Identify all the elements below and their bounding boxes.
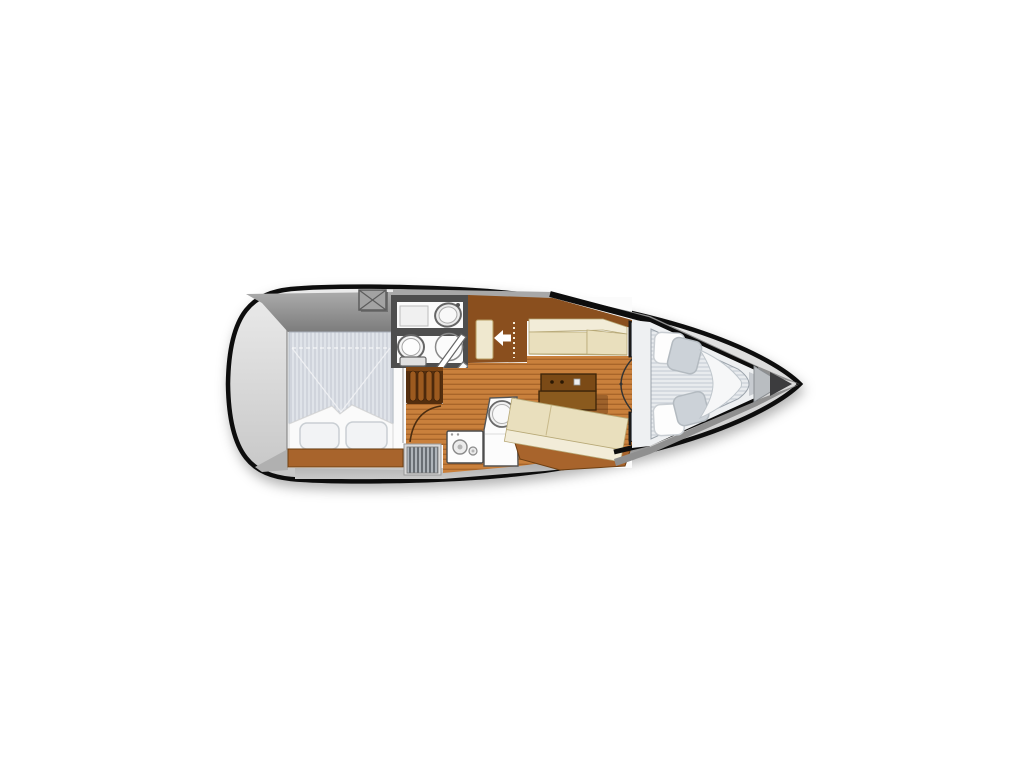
burner-small-center [472, 450, 475, 453]
step-3 [426, 371, 432, 401]
port-seat-right [587, 330, 627, 355]
stove-knob-1 [451, 433, 453, 435]
step-1 [410, 371, 416, 401]
vent-grate [407, 447, 438, 473]
vanity-counter [400, 306, 428, 326]
port-seat-left [529, 332, 587, 354]
aft-berth-wood-base [288, 449, 403, 467]
toilet-tank [400, 357, 426, 366]
deck-hatch-icon [359, 290, 388, 312]
step-2 [418, 371, 424, 401]
table-drawer [541, 374, 596, 391]
port-settee [529, 319, 627, 355]
table-latch [574, 379, 580, 385]
stove-knob-2 [457, 433, 459, 435]
burner-large-center [458, 445, 463, 450]
steps-cap [406, 367, 443, 371]
step-4 [434, 371, 440, 401]
aft-pillow-left [300, 423, 339, 449]
aft-pillow-right [346, 422, 387, 449]
aft-berth-mattress [289, 332, 393, 424]
canvas [0, 0, 1024, 768]
companionway-steps [406, 367, 443, 404]
boat-floor-plan [0, 0, 1024, 768]
drawer-knob-1 [550, 380, 554, 384]
wardrobe-door [476, 320, 493, 359]
aft-cabin [288, 332, 408, 467]
engine-vent [404, 444, 441, 475]
drawer-knob-2 [560, 380, 564, 384]
aft-corridor [406, 404, 443, 445]
door-latch-dot [620, 383, 623, 386]
sink-faucet [456, 303, 460, 307]
corridor-floor [406, 404, 443, 445]
toilet-seat [402, 339, 420, 356]
